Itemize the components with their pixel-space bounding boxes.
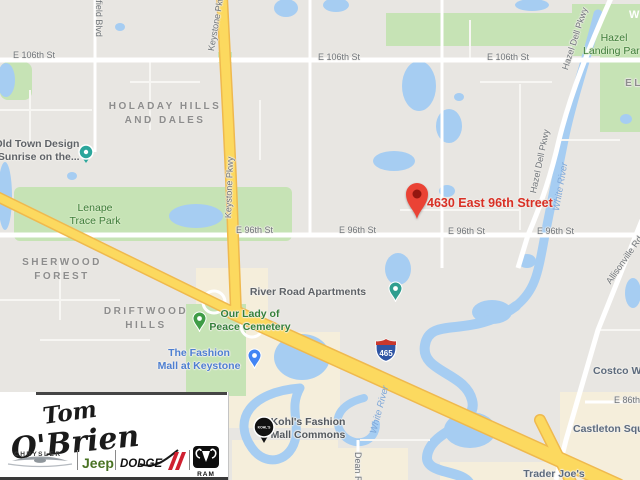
water-label: White River [368, 385, 391, 435]
poi-label: Kohl's FashionMall Commons [271, 416, 346, 442]
neighborhood-label: HOLADAY HILLSAND DALES [109, 100, 222, 128]
street-label: Hazel Dell Pkwy [528, 128, 551, 194]
marker-address-label: 4630 East 96th Street [427, 196, 553, 210]
poi-label: Old Town Design(Sunrise on the... [0, 138, 80, 164]
ram-badge-icon [193, 446, 219, 468]
street-label: Dean Rd [353, 452, 363, 480]
poi-label: Castleton Square [573, 423, 640, 436]
street-label: E 96th St [537, 226, 574, 236]
white-map-label: W [629, 9, 639, 21]
dodge-wordmark: DODGE [120, 458, 163, 470]
street-label: E 96th St [236, 225, 273, 235]
jeep-wordmark: Jeep [82, 455, 114, 471]
street-label: E 106th St [13, 50, 55, 60]
poi-pin-icon[interactable] [77, 144, 95, 169]
street-label: E 106th St [487, 52, 529, 62]
neighborhood-label: EL [625, 77, 640, 91]
neighborhood-label: DRIFTWOODHILLS [104, 305, 188, 333]
tom-obrien-logo-panel: Tom O'Brien CHRYSLER Jeep DODGE [0, 392, 229, 480]
divider [77, 450, 78, 470]
water-label: White River [551, 162, 570, 212]
neighborhood-label: SHERWOODFOREST [22, 256, 102, 284]
poi-pin-icon[interactable] [247, 348, 262, 374]
svg-text:KOHL'S: KOHL'S [258, 426, 271, 430]
poi-label: The FashionMall at Keystone [158, 347, 241, 373]
street-label: E 96th St [339, 225, 376, 235]
street-label: Keystone Pkwy [223, 157, 235, 219]
poi-label: Our Lady ofPeace Cemetery [209, 308, 290, 334]
tom-obrien-logo: Tom O'Brien CHRYSLER Jeep DODGE [0, 392, 228, 477]
poi-label: Costco Wholesale [593, 365, 640, 378]
poi-label: River Road Apartments [250, 286, 366, 299]
street-label: Keystone Pkwy [206, 0, 227, 52]
map-screenshot: 465 E 106th StE 106th StE 106th StE 96th… [0, 0, 640, 480]
street-label: E 106th St [318, 52, 360, 62]
poi-pin-icon[interactable]: KOHL'S [252, 416, 276, 449]
poi-label: Trader Joe's [523, 468, 584, 480]
street-label: E 86th St [614, 395, 640, 405]
poi-pin-icon[interactable] [388, 281, 403, 307]
poi-pin-icon[interactable] [192, 311, 207, 337]
street-label: Westfield Blvd [94, 0, 104, 37]
divider [189, 450, 190, 470]
park-label: HazelLanding Park [583, 32, 640, 58]
panel-top-border [36, 392, 227, 395]
park-label: LenapeTrace Park [70, 202, 121, 228]
street-label: E 96th St [448, 226, 485, 236]
divider [115, 450, 116, 470]
street-label: Allisonville Rd [604, 234, 640, 286]
